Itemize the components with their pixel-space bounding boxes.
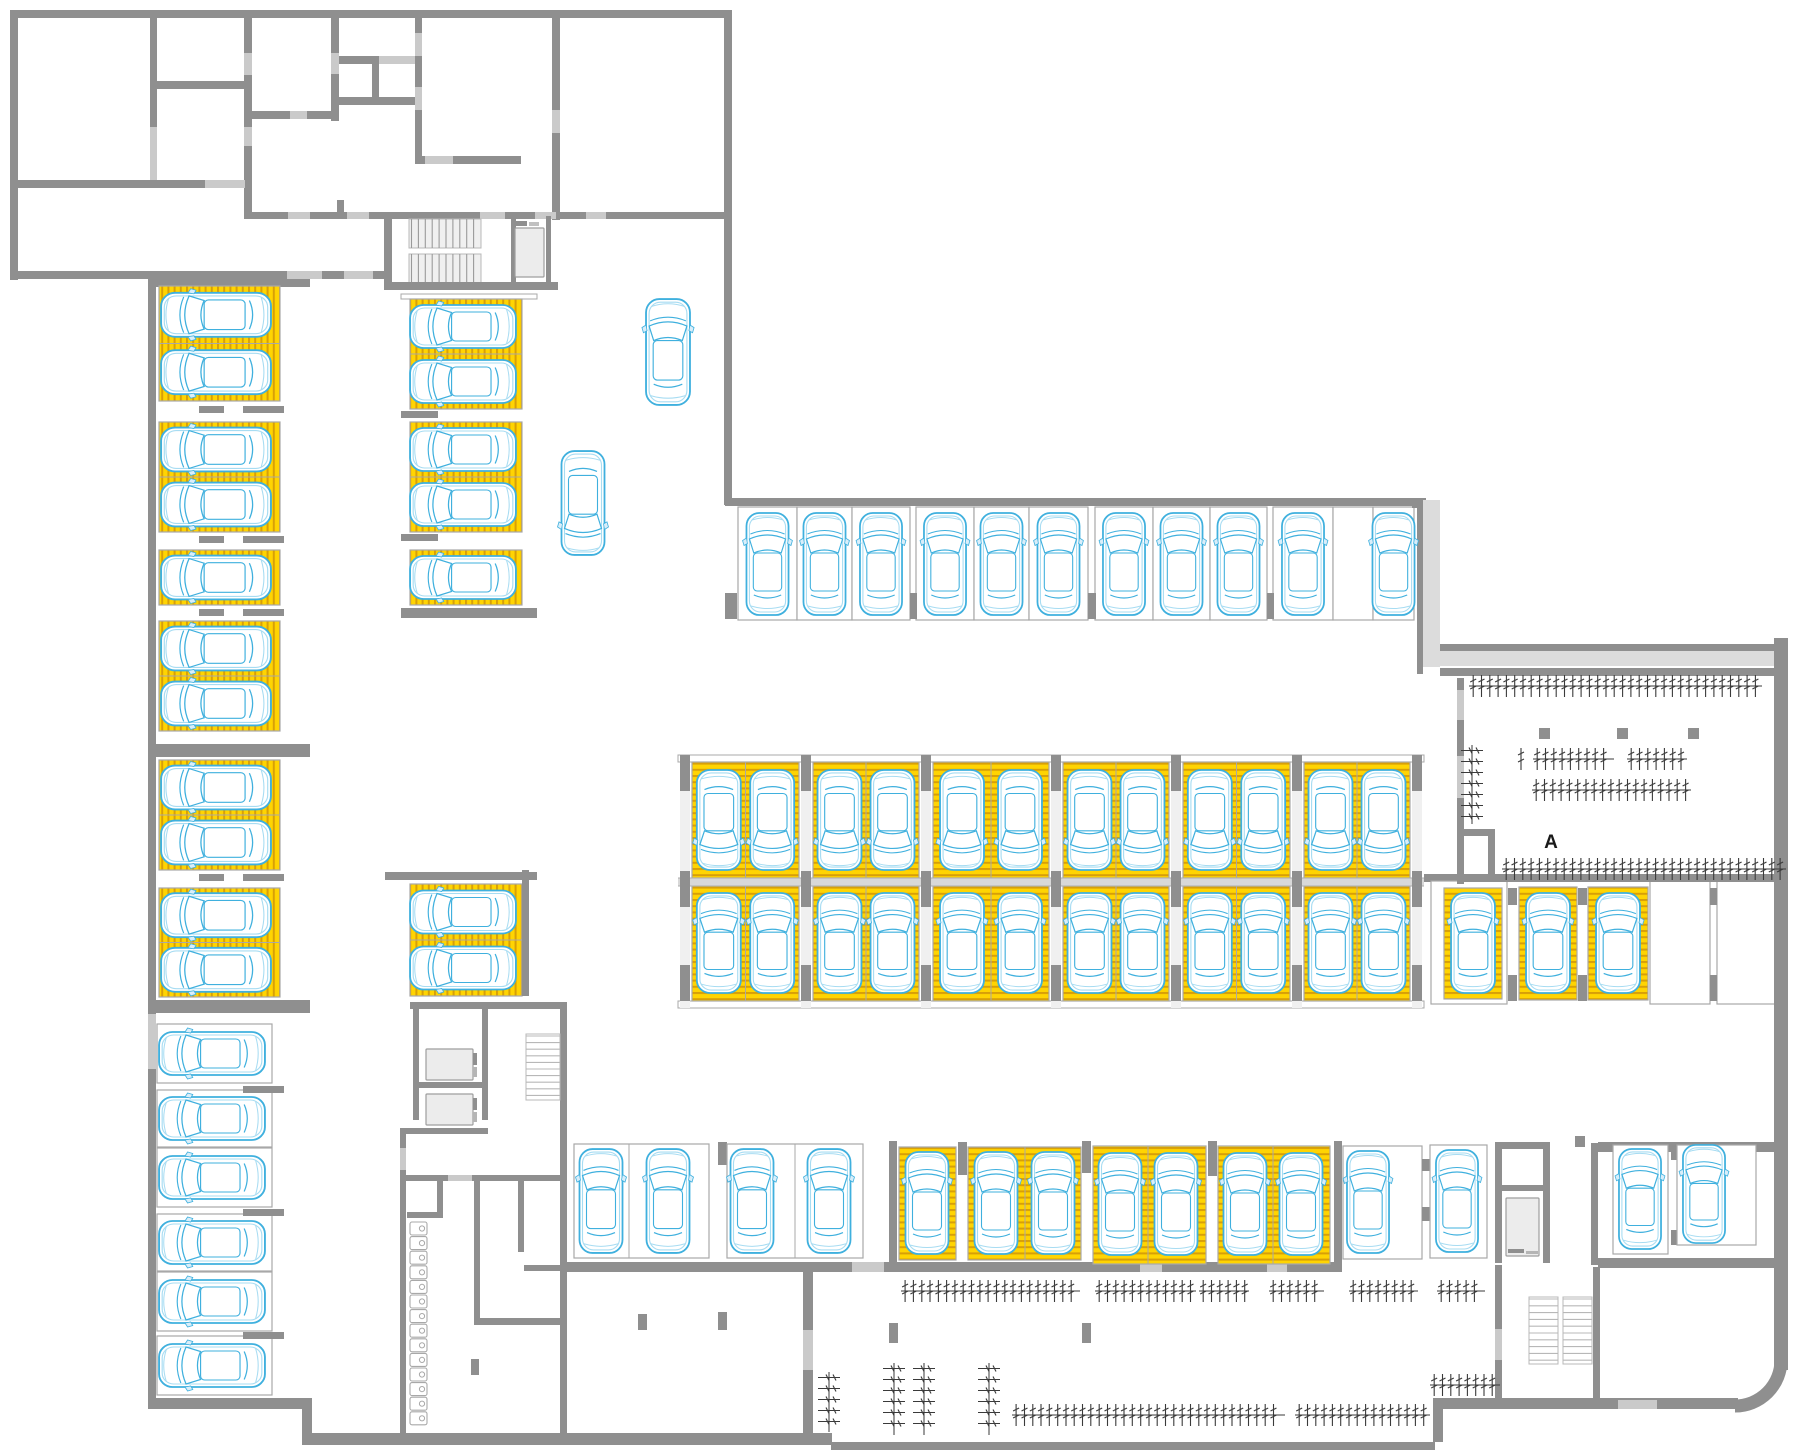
svg-text:A: A — [1544, 832, 1558, 853]
